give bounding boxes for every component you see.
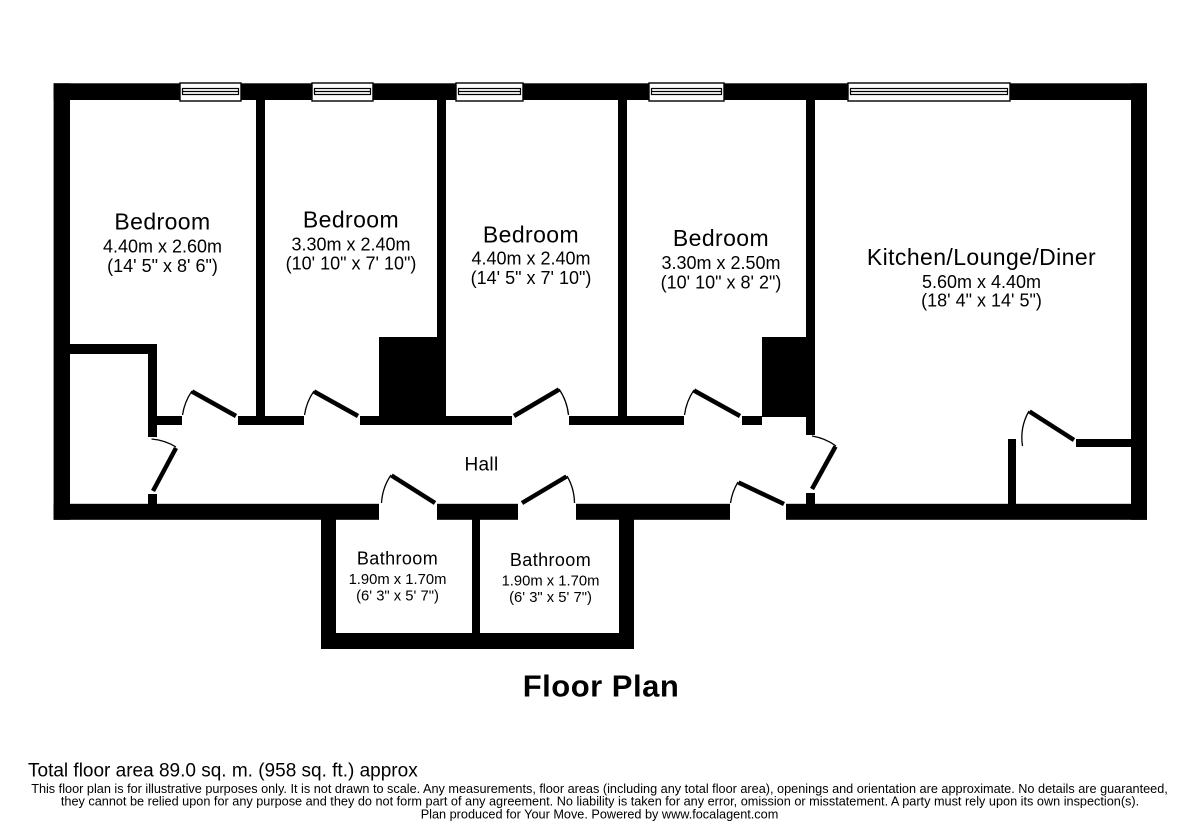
svg-text:4.40m x 2.60m: 4.40m x 2.60m: [103, 237, 222, 257]
svg-text:Bathroom: Bathroom: [357, 549, 438, 569]
svg-text:(6' 3" x 5' 7"): (6' 3" x 5' 7"): [356, 588, 439, 604]
svg-text:Bedroom: Bedroom: [114, 209, 210, 235]
svg-text:3.30m x 2.40m: 3.30m x 2.40m: [291, 235, 410, 255]
svg-text:Floor Plan: Floor Plan: [523, 668, 680, 703]
svg-text:(6' 3" x 5' 7"): (6' 3" x 5' 7"): [509, 590, 592, 606]
svg-text:Total floor area 89.0 sq. m. (: Total floor area 89.0 sq. m. (958 sq. ft…: [28, 760, 418, 781]
svg-text:Bedroom: Bedroom: [673, 225, 769, 251]
svg-text:Hall: Hall: [465, 455, 499, 476]
svg-text:(18' 4" x 14' 5"): (18' 4" x 14' 5"): [921, 291, 1042, 311]
svg-text:3.30m x 2.50m: 3.30m x 2.50m: [661, 253, 780, 273]
svg-text:Bathroom: Bathroom: [510, 550, 591, 570]
svg-text:1.90m x 1.70m: 1.90m x 1.70m: [502, 574, 600, 590]
svg-text:4.40m x 2.40m: 4.40m x 2.40m: [471, 249, 590, 269]
svg-text:Plan produced for Your Move. P: Plan produced for Your Move. Powered by …: [421, 807, 779, 821]
svg-text:Bedroom: Bedroom: [303, 207, 399, 233]
svg-text:Bedroom: Bedroom: [483, 222, 579, 248]
svg-text:(14' 5" x 7' 10"): (14' 5" x 7' 10"): [471, 268, 592, 288]
svg-text:Kitchen/Lounge/Diner: Kitchen/Lounge/Diner: [867, 244, 1096, 270]
svg-text:(10' 10" x 8' 2"): (10' 10" x 8' 2"): [661, 273, 782, 293]
svg-text:(10' 10" x 7' 10"): (10' 10" x 7' 10"): [286, 254, 417, 274]
svg-text:(14' 5" x 8' 6"): (14' 5" x 8' 6"): [107, 256, 218, 276]
svg-text:1.90m x 1.70m: 1.90m x 1.70m: [349, 572, 447, 588]
svg-text:5.60m x 4.40m: 5.60m x 4.40m: [922, 272, 1041, 292]
